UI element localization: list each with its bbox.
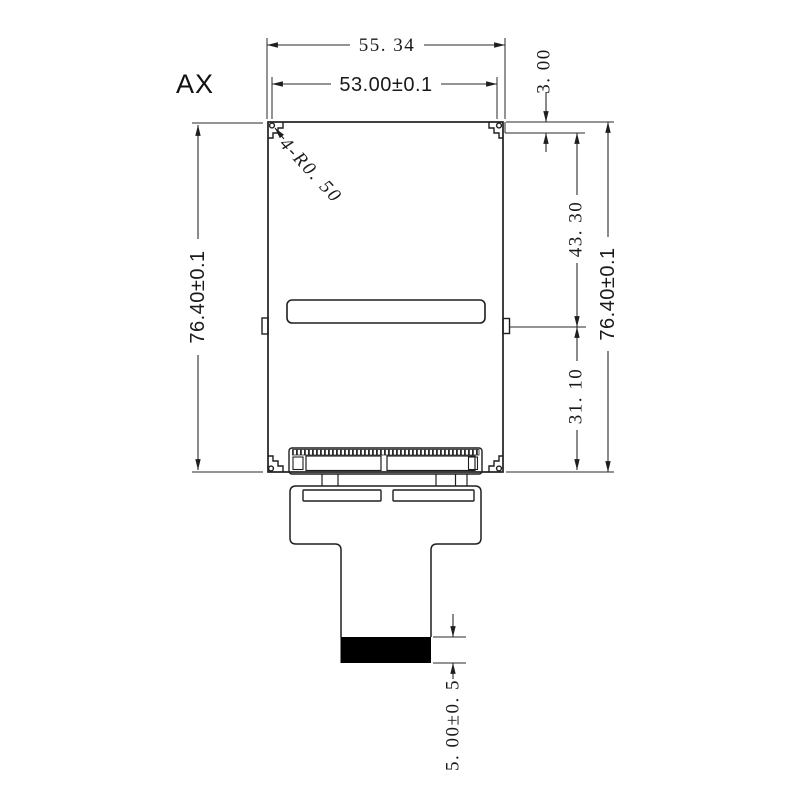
technical-drawing-canvas: AX 55. 34 53.00±0.1 76.40±0.1 3. 00 43. … <box>0 0 800 800</box>
dim-overall-width: 55. 34 <box>359 35 416 56</box>
module-body <box>262 122 510 472</box>
dim-height-left: 76.40±0.1 <box>187 250 209 343</box>
dim-active-width: 53.00±0.1 <box>339 74 432 96</box>
dim-connector-tail: 5. 00±0. 5 <box>443 679 464 771</box>
dim-upper-section: 43. 30 <box>566 201 587 258</box>
dim-lower-section: 31. 10 <box>566 368 587 425</box>
pin-hatch-band <box>293 450 480 456</box>
dim-top-step: 3. 00 <box>534 48 555 94</box>
stiffener-black-bar <box>341 637 432 663</box>
dim-height-right: 76.40±0.1 <box>597 247 619 340</box>
view-label: AX <box>176 69 214 99</box>
